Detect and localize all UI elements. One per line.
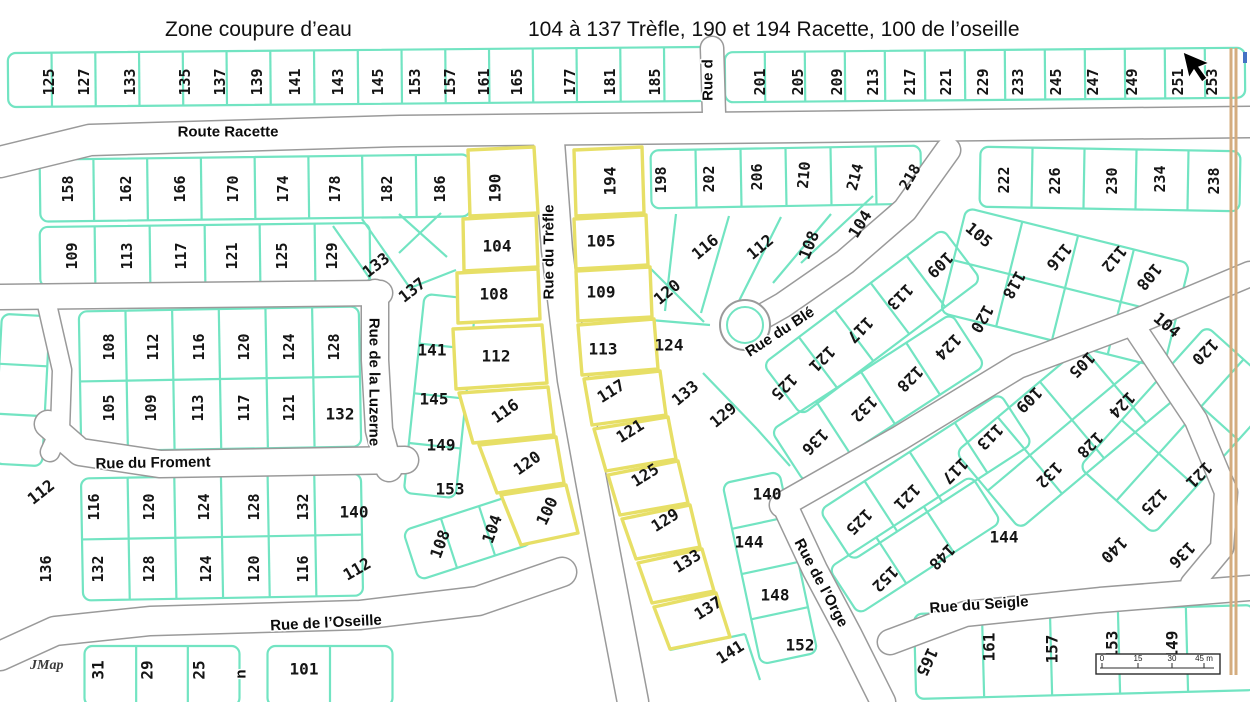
parcel-label: 140	[753, 485, 782, 504]
parcel-label: 109	[587, 283, 616, 302]
highlight-parcel-117	[584, 371, 666, 425]
parcel-label: 113	[883, 280, 917, 314]
parcel-label: 117	[843, 313, 877, 347]
affected-parcels-title: 104 à 137 Trèfle, 190 et 194 Racette, 10…	[528, 18, 1020, 42]
parcel-label: 222	[995, 166, 1013, 193]
parcel-label: 162	[117, 175, 135, 202]
parcel-label: 101	[290, 660, 319, 679]
parcel-label: 206	[748, 163, 766, 190]
jmap-watermark: JMap	[29, 658, 63, 673]
parcel-label: 121	[280, 394, 298, 421]
parcel-label: 181	[601, 68, 619, 95]
parcel-label: 127	[75, 68, 93, 95]
parcel-block	[85, 646, 240, 702]
parcel-label: 185	[646, 68, 664, 95]
street-label: Rue de la Luzerne	[366, 318, 383, 446]
parcel-label: 229	[974, 68, 992, 95]
street-label: n	[233, 669, 250, 678]
parcel-boundary	[399, 214, 447, 257]
parcel-block	[40, 223, 371, 287]
parcel-label: 194	[601, 167, 620, 196]
header: Zone coupure d’eau 104 à 137 Trèfle, 190…	[0, 0, 1250, 48]
parcel-label: 182	[378, 175, 396, 202]
parcel-label: 128	[245, 493, 263, 520]
parcel-label: 124	[195, 493, 213, 520]
street-label: Route Racette	[178, 124, 279, 141]
parcel-label: 166	[171, 175, 189, 202]
parcel-label: 140	[1097, 533, 1131, 567]
parcel-label: 113	[973, 420, 1007, 454]
parcel-block	[40, 154, 471, 221]
scale-tick-label: 45 m	[1195, 654, 1213, 663]
parcel-label: 245	[1047, 68, 1065, 95]
parcel-label: 190	[486, 174, 505, 203]
parcel-label: 116	[294, 555, 312, 582]
parcel-label: 124	[655, 336, 684, 355]
page-title: Zone coupure d’eau	[165, 18, 352, 42]
parcel-label: 133	[359, 249, 393, 282]
street-label: Rue de l’Orge	[791, 536, 852, 630]
parcel-label: 112	[340, 554, 375, 585]
parcel-label: 136	[798, 425, 832, 459]
parcel-label: 238	[1205, 167, 1223, 194]
road	[0, 293, 380, 297]
street-label: Rue du Trèfle	[541, 204, 558, 299]
parcel-label: 226	[1046, 167, 1064, 194]
parcel-label: 177	[561, 68, 579, 95]
parcel-label: 109	[142, 394, 160, 421]
parcel-label: 157	[1043, 635, 1062, 664]
parcel-label: 113	[118, 242, 136, 269]
parcel-label: 157	[441, 68, 459, 95]
parcel-label: 149	[427, 436, 456, 455]
parcel-label: 234	[1151, 165, 1169, 192]
parcel-label: 124	[1105, 388, 1139, 422]
parcel-label: 120	[140, 493, 158, 520]
parcel-label: 158	[59, 175, 77, 202]
parcel-label: 186	[431, 175, 449, 202]
parcel-label: 120	[967, 302, 998, 337]
parcel-label: 170	[224, 175, 242, 202]
parcel-label: 178	[326, 175, 344, 202]
parcel-label: 124	[280, 333, 298, 360]
parcel-label: 121	[805, 342, 839, 376]
street-label: Rue d	[700, 59, 717, 101]
parcel-label: 249	[1123, 68, 1141, 95]
parcel-label: 165	[912, 645, 941, 679]
parcel-label: 125	[40, 68, 58, 95]
parcel-block	[0, 314, 50, 466]
scale-tick-label: 15	[1134, 654, 1143, 663]
parcel-label: 143	[329, 68, 347, 95]
map-viewport: Zone coupure d’eau 104 à 137 Trèfle, 190…	[0, 0, 1250, 702]
parcel-label: 109	[1012, 383, 1046, 417]
parcel-label: 125	[273, 242, 291, 269]
parcel-label: 25	[190, 660, 209, 679]
parcel-label: 125	[842, 505, 876, 539]
parcel-label: 133	[121, 68, 139, 95]
map-canvas[interactable]: 1251271331351371391411431451531571611651…	[0, 0, 1250, 702]
parcel-block	[79, 307, 361, 452]
parcel-label: 145	[369, 68, 387, 95]
parcel-boundary	[650, 320, 710, 325]
parcel-label: 152	[786, 636, 815, 655]
parcel-label: 132	[89, 555, 107, 582]
parcel-label: 121	[223, 242, 241, 269]
parcel-label: 198	[652, 166, 670, 193]
parcel-label: 205	[789, 68, 807, 95]
parcel-label: 144	[735, 533, 764, 552]
parcel-label: 125	[1137, 485, 1171, 519]
parcel-label: 132	[326, 405, 355, 424]
parcel-label: 117	[172, 242, 190, 269]
parcel-label: 139	[248, 68, 266, 95]
parcel-label: 201	[751, 68, 769, 95]
parcel-label: 230	[1103, 167, 1121, 194]
parcel-label: 233	[1009, 68, 1027, 95]
parcel-label: 221	[937, 68, 955, 95]
parcel-boundary	[701, 216, 729, 313]
parcel-block	[651, 146, 922, 209]
parcel-label: 124	[197, 555, 215, 582]
parcel-label: 117	[235, 394, 253, 421]
parcel-label: 129	[706, 398, 740, 431]
parcel-label: 109	[63, 242, 81, 269]
parcel-label: 128	[325, 333, 343, 360]
parcel-label: 129	[323, 242, 341, 269]
blue-tick	[1243, 52, 1247, 63]
parcel-label: 213	[864, 68, 882, 95]
parcel-label: 137	[211, 68, 229, 95]
parcel-label: 140	[340, 503, 369, 522]
parcel-label: 210	[794, 161, 814, 190]
parcel-label: 209	[828, 68, 846, 95]
parcel-label: 153	[406, 68, 424, 95]
parcel-label: 135	[176, 68, 194, 95]
parcel-label: 141	[418, 341, 447, 360]
scale-tick-label: 0	[1100, 654, 1105, 663]
parcel-label: 165	[508, 68, 526, 95]
parcel-label: 29	[138, 660, 157, 679]
parcel-label: 108	[795, 228, 823, 262]
parcel-label: 112	[144, 333, 162, 360]
parcel-label: 136	[37, 555, 55, 582]
parcel-label: 108	[480, 285, 509, 304]
parcel-label: 117	[938, 454, 972, 488]
parcel-label: 104	[483, 237, 512, 256]
parcel-label: 161	[475, 68, 493, 95]
parcel-label: 105	[100, 394, 118, 421]
parcel-label: 120	[245, 555, 263, 582]
parcel-label: 202	[700, 165, 718, 192]
parcel-label: 120	[650, 275, 684, 308]
scale-tick-label: 30	[1168, 654, 1177, 663]
parcel-label: 108	[100, 333, 118, 360]
parcel-label: 116	[190, 333, 208, 360]
parcel-label: 112	[482, 347, 511, 366]
parcel-block	[81, 474, 363, 601]
parcel-label: 132	[847, 392, 881, 426]
parcel-label: 31	[89, 660, 108, 679]
parcel-label: 132	[294, 493, 312, 520]
parcel-label: 113	[189, 394, 207, 421]
parcel-label: 108	[1132, 260, 1165, 294]
parcel-label: 153	[436, 480, 465, 499]
parcel-label: 141	[286, 68, 304, 95]
parcel-label: 105	[962, 218, 996, 251]
parcel-label: 128	[140, 555, 158, 582]
parcel-label: 105	[587, 232, 616, 251]
parcel-label: 116	[85, 493, 103, 520]
parcel-label: 148	[761, 586, 790, 605]
parcel-label: 120	[235, 333, 253, 360]
parcel-block	[268, 646, 393, 702]
parcel-label: 145	[420, 390, 449, 409]
parcel-label: 253	[1203, 68, 1221, 95]
parcel-label: 109	[923, 248, 957, 282]
parcel-label: 144	[990, 528, 1019, 547]
parcel-label: 113	[589, 340, 618, 359]
parcel-label: 217	[901, 68, 919, 95]
parcel-label: 174	[274, 175, 292, 202]
parcel-label: 247	[1084, 68, 1102, 95]
parcel-boundary	[745, 634, 760, 680]
parcel-label: 108	[426, 527, 454, 561]
parcel-label: 161	[980, 633, 999, 662]
parcel-label: 124	[931, 330, 965, 364]
street-label: Rue du Froment	[95, 453, 210, 472]
parcel-label: 214	[843, 162, 867, 193]
parcel-label: 112	[24, 476, 58, 509]
parcel-label: 133	[668, 376, 702, 409]
parcel-label: 251	[1169, 68, 1187, 95]
